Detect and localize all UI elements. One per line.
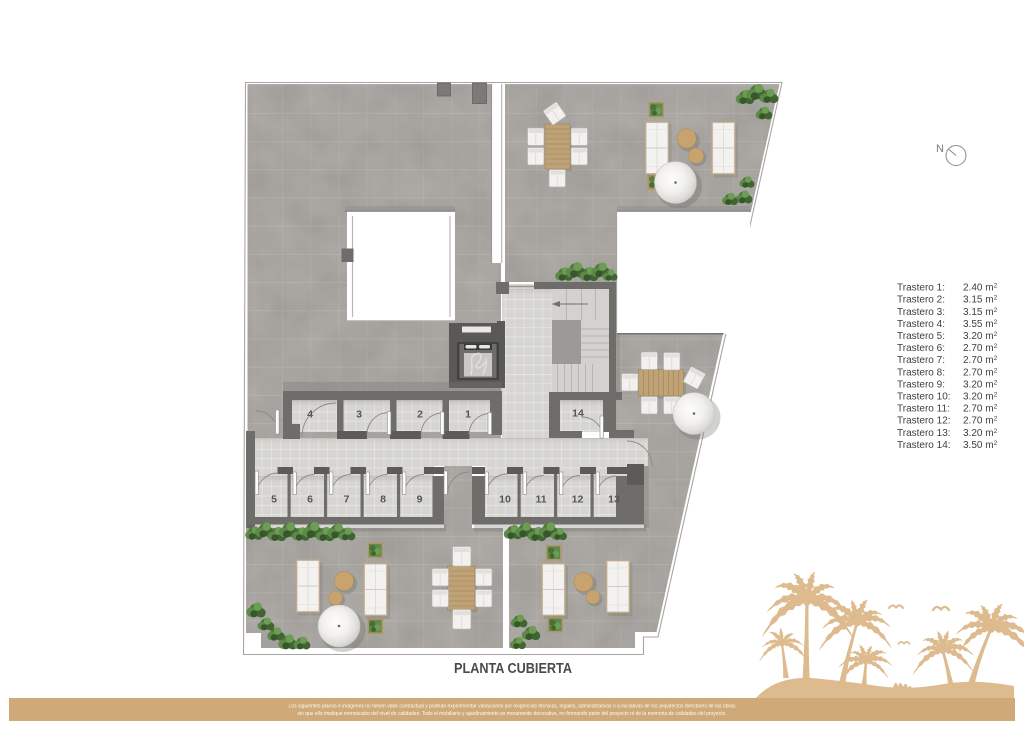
svg-text:2.70 m2: 2.70 m2: [963, 416, 998, 427]
svg-text:10: 10: [499, 494, 511, 506]
svg-text:12: 12: [572, 494, 584, 506]
svg-text:11: 11: [535, 494, 546, 506]
svg-text:2: 2: [417, 409, 423, 421]
svg-text:N: N: [936, 143, 944, 155]
svg-text:Trastero 4:: Trastero 4:: [897, 319, 945, 330]
svg-text:Trastero 7:: Trastero 7:: [897, 355, 945, 366]
svg-text:sin que ello implique menoscab: sin que ello implique menoscabo del nive…: [297, 711, 726, 717]
svg-text:9: 9: [417, 494, 423, 506]
svg-text:13: 13: [608, 494, 620, 506]
svg-text:3.15 m2: 3.15 m2: [963, 295, 998, 306]
svg-text:Trastero 3:: Trastero 3:: [897, 307, 945, 318]
svg-text:3.55 m2: 3.55 m2: [963, 319, 998, 330]
svg-text:Trastero 2:: Trastero 2:: [897, 295, 945, 306]
svg-text:Trastero 5:: Trastero 5:: [897, 331, 945, 342]
svg-text:Trastero 6:: Trastero 6:: [897, 343, 945, 354]
svg-text:Los siguientes planos e imágen: Los siguientes planos e imágenes no tien…: [289, 704, 736, 710]
svg-text:Trastero 8:: Trastero 8:: [897, 367, 945, 378]
svg-text:2.70 m2: 2.70 m2: [963, 404, 998, 415]
svg-text:Trastero 1:: Trastero 1:: [897, 283, 945, 294]
svg-text:3.20 m2: 3.20 m2: [963, 392, 998, 403]
svg-text:2.70 m2: 2.70 m2: [963, 367, 998, 378]
svg-text:3.15 m2: 3.15 m2: [963, 307, 998, 318]
svg-text:2.70 m2: 2.70 m2: [963, 343, 998, 354]
svg-text:Trastero 11:: Trastero 11:: [897, 404, 950, 415]
svg-text:3.20 m2: 3.20 m2: [963, 428, 998, 439]
svg-text:7: 7: [344, 494, 350, 506]
svg-text:3.50 m2: 3.50 m2: [963, 440, 998, 451]
svg-text:3: 3: [356, 409, 362, 421]
svg-text:Trastero 10:: Trastero 10:: [897, 392, 951, 403]
svg-text:2.40 m2: 2.40 m2: [963, 283, 998, 294]
svg-text:2.70 m2: 2.70 m2: [963, 355, 998, 366]
svg-text:3.20 m2: 3.20 m2: [963, 379, 998, 390]
svg-text:Trastero 9:: Trastero 9:: [897, 379, 945, 390]
svg-text:8: 8: [380, 494, 386, 506]
svg-text:Trastero 13:: Trastero 13:: [897, 428, 951, 439]
svg-text:6: 6: [307, 494, 313, 506]
svg-text:14: 14: [572, 408, 584, 420]
svg-text:Trastero 14:: Trastero 14:: [897, 440, 951, 451]
svg-text:1: 1: [465, 409, 471, 421]
svg-text:Trastero 12:: Trastero 12:: [897, 416, 951, 427]
svg-text:4: 4: [307, 409, 313, 421]
svg-text:3.20 m2: 3.20 m2: [963, 331, 998, 342]
svg-text:5: 5: [271, 494, 277, 506]
svg-text:PLANTA CUBIERTA: PLANTA CUBIERTA: [454, 661, 572, 677]
